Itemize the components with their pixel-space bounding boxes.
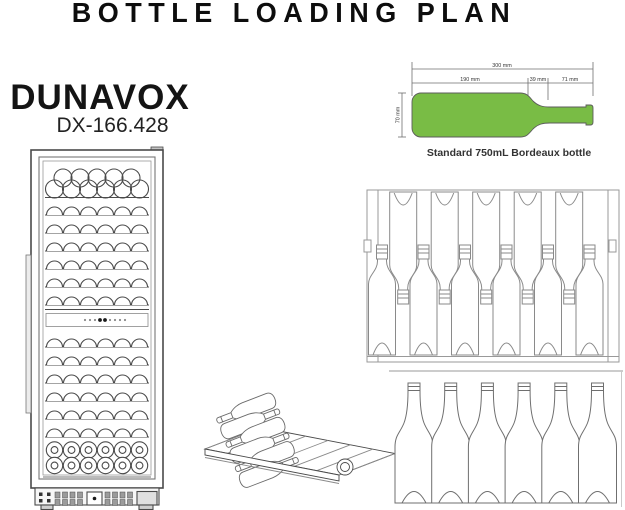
shelf-frame — [364, 190, 619, 362]
cooler-drawing — [26, 147, 163, 510]
diameter-label: 70 mm — [396, 106, 402, 123]
wine-cooler-illustration — [25, 147, 170, 510]
isometric-shelf — [205, 391, 395, 489]
standing-bottles — [389, 371, 623, 507]
base-right-block — [137, 492, 157, 506]
total-length-label: 300 mm — [492, 63, 512, 69]
green-bottle-shape — [412, 93, 593, 137]
brand-logo: DUNAVOX — [0, 78, 200, 118]
right-notch — [609, 240, 616, 252]
shelf-isometric-diagram — [193, 377, 393, 509]
bottle-loading-plan-page: BOTTLE LOADING PLAN DUNAVOX DX-166.428 — [0, 0, 625, 510]
body-length-label: 190 mm — [460, 77, 480, 83]
bottle-caption: Standard 750mL Bordeaux bottle — [393, 147, 625, 159]
page-title: BOTTLE LOADING PLAN — [0, 0, 588, 29]
neck-length-label: 71 mm — [562, 77, 579, 83]
left-notch — [364, 240, 371, 252]
model-number: DX-166.428 — [0, 114, 225, 138]
door-handle — [26, 255, 31, 413]
standing-bottles-diagram — [387, 367, 625, 509]
bottle-row — [395, 383, 617, 503]
shoulder-length-label: 39 mm — [530, 77, 547, 83]
right-foot — [139, 505, 153, 510]
shelf-top-view-diagram — [357, 183, 623, 368]
left-foot — [41, 505, 53, 510]
